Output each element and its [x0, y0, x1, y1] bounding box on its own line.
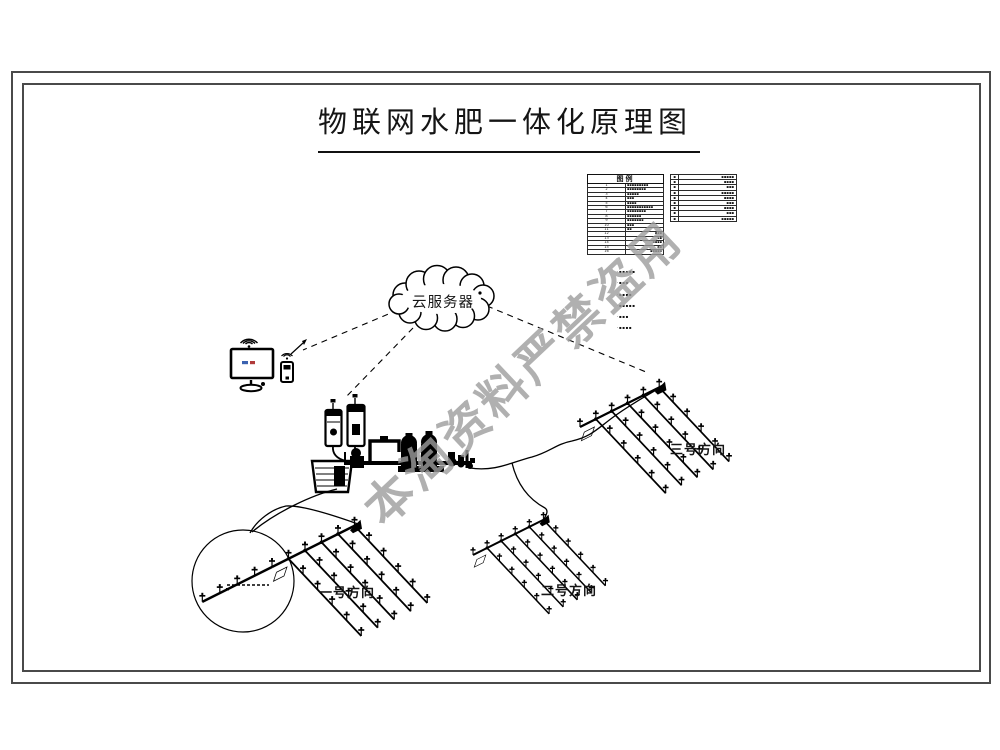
- page-title: 物联网水肥一体化原理图: [300, 99, 710, 141]
- field-label-direction-1: 一号方向: [319, 582, 375, 601]
- note-line: ·▪▪▪: [617, 311, 657, 322]
- legend-table: 图例 1▪▪▪▪▪▪▪▪▪2▪▪▪▪▪▪▪▪3▪▪▪▪▪4▪▪▪5▪▪▪▪6▪▪…: [587, 174, 664, 255]
- legend-title: 图例: [588, 175, 664, 184]
- note-line: ·▪▪▪▪▪: [617, 300, 657, 311]
- field-grid-3: [577, 379, 732, 493]
- drawing-canvas: 物联网水肥一体化原理图 云服务器 一号方向 二号方向 三号方向 图例 1▪▪▪▪…: [0, 0, 1000, 750]
- water-basin: [312, 452, 352, 492]
- sheet-frame: [12, 72, 990, 683]
- wifi-icon: [241, 339, 258, 348]
- legend-row: 16▪▪▪▪▪: [588, 250, 664, 254]
- wifi-icon: [282, 354, 293, 360]
- field-label-direction-3: 三号方向: [670, 439, 726, 458]
- mobile-terminal: [281, 339, 307, 382]
- cloud-server-label: 云服务器: [399, 291, 487, 312]
- legend-table-secondary-body: ▪▪▪▪▪▪▪▪▪▪▪▪▪▪▪▪▪▪▪▪▪▪▪▪▪▪▪▪▪▪▪▪▪▪▪▪▪▪▪▪…: [671, 175, 737, 222]
- legend-table-body: 1▪▪▪▪▪▪▪▪▪2▪▪▪▪▪▪▪▪3▪▪▪▪▪4▪▪▪5▪▪▪▪6▪▪▪▪▪…: [588, 184, 664, 255]
- notes-list: ·▪▪▪▪▪·▪▪▪·▪▪▪▪·▪▪▪▪▪·▪▪▪·▪▪▪▪: [617, 266, 657, 334]
- legend-row: ▪▪▪▪▪▪: [671, 216, 737, 221]
- legend-table-secondary: ▪▪▪▪▪▪▪▪▪▪▪▪▪▪▪▪▪▪▪▪▪▪▪▪▪▪▪▪▪▪▪▪▪▪▪▪▪▪▪▪…: [670, 174, 737, 222]
- note-line: ·▪▪▪▪: [617, 289, 657, 300]
- note-line: ·▪▪▪▪▪: [617, 266, 657, 277]
- note-line: ·▪▪▪▪: [617, 322, 657, 333]
- note-line: ·▪▪▪: [617, 277, 657, 288]
- monitor: [231, 339, 273, 391]
- field-label-direction-2: 二号方向: [541, 580, 597, 599]
- field-grid-1-extension: [199, 567, 272, 602]
